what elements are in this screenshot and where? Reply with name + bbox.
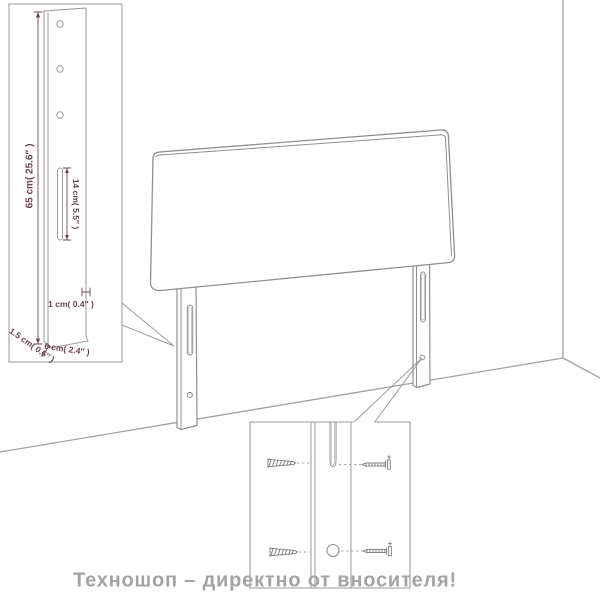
callout-left-lower — [122, 325, 174, 346]
dim-label-height: 65 cm( 25.6″ ) — [25, 144, 36, 209]
right-leg — [413, 257, 430, 388]
callout-left-upper — [122, 303, 174, 346]
callout-lines — [122, 303, 422, 423]
floor-edge-right — [563, 358, 600, 378]
watermark-text: Техношоп – директно от вносителя! — [73, 570, 457, 593]
dim-label-hole: 1 cm( 0.4″ ) — [48, 299, 94, 309]
dim-label-slot-length: 14 cm( 5.5″ ) — [71, 179, 81, 229]
callout-bottom-left — [353, 358, 422, 423]
hardware-inset — [250, 422, 410, 588]
callout-bottom-right — [374, 358, 422, 423]
product-diagram-image: 65 cm( 25.6″ ) 14 cm( 5.5″ ) 1 cm( 0.4″ … — [0, 0, 600, 600]
headboard-panel — [151, 130, 455, 291]
left-leg — [177, 283, 197, 430]
